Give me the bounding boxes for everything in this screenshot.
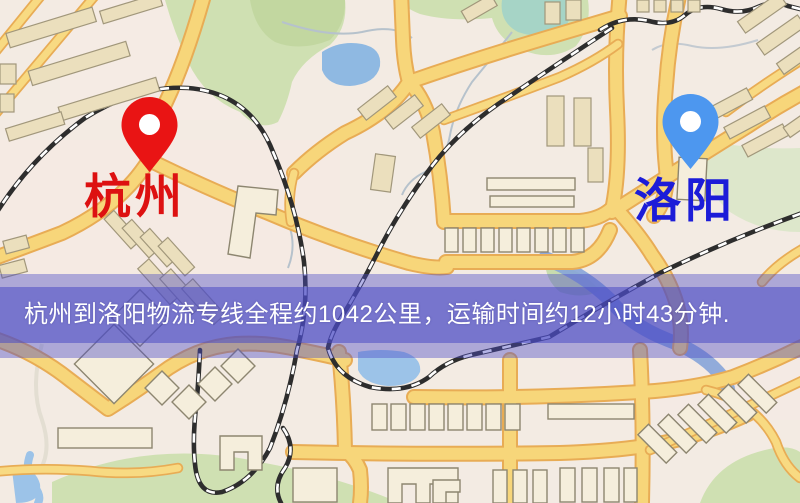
map-background xyxy=(0,0,800,503)
destination-city-label: 洛阳 xyxy=(634,177,736,224)
lake xyxy=(322,43,380,86)
destination-map-pin-icon[interactable] xyxy=(662,94,719,169)
pin-hole xyxy=(139,114,160,135)
route-info-text: 杭州到洛阳物流专线全程约1042公里，运输时间约12小时43分钟. xyxy=(24,287,730,343)
origin-map-pin-icon[interactable] xyxy=(121,97,178,172)
pond-bottom xyxy=(358,350,420,386)
origin-city-label: 杭州 xyxy=(84,173,186,220)
pin-hole xyxy=(680,111,701,132)
route-map: 杭州到洛阳物流专线全程约1042公里，运输时间约12小时43分钟. 杭州 洛阳 xyxy=(0,0,800,503)
